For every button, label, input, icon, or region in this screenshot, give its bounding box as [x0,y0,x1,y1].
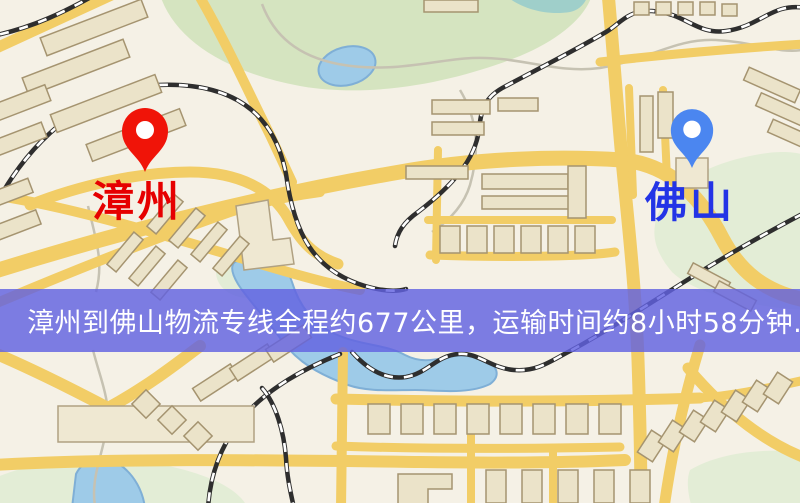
origin-marker-icon [122,108,168,172]
origin-city-label: 漳州 [92,177,182,226]
destination-city-label: 佛山 [644,178,735,227]
route-info-text: 漳州到佛山物流专线全程约677公里，运输时间约8小时58分钟. [27,301,800,340]
map-canvas: 漳州 佛山 [0,0,800,503]
map-screenshot: 漳州 佛山 漳州到佛山物流专线全程约677公里，运输时间约8小时58分钟. [0,0,800,503]
route-info-banner: 漳州到佛山物流专线全程约677公里，运输时间约8小时58分钟. [0,289,800,352]
